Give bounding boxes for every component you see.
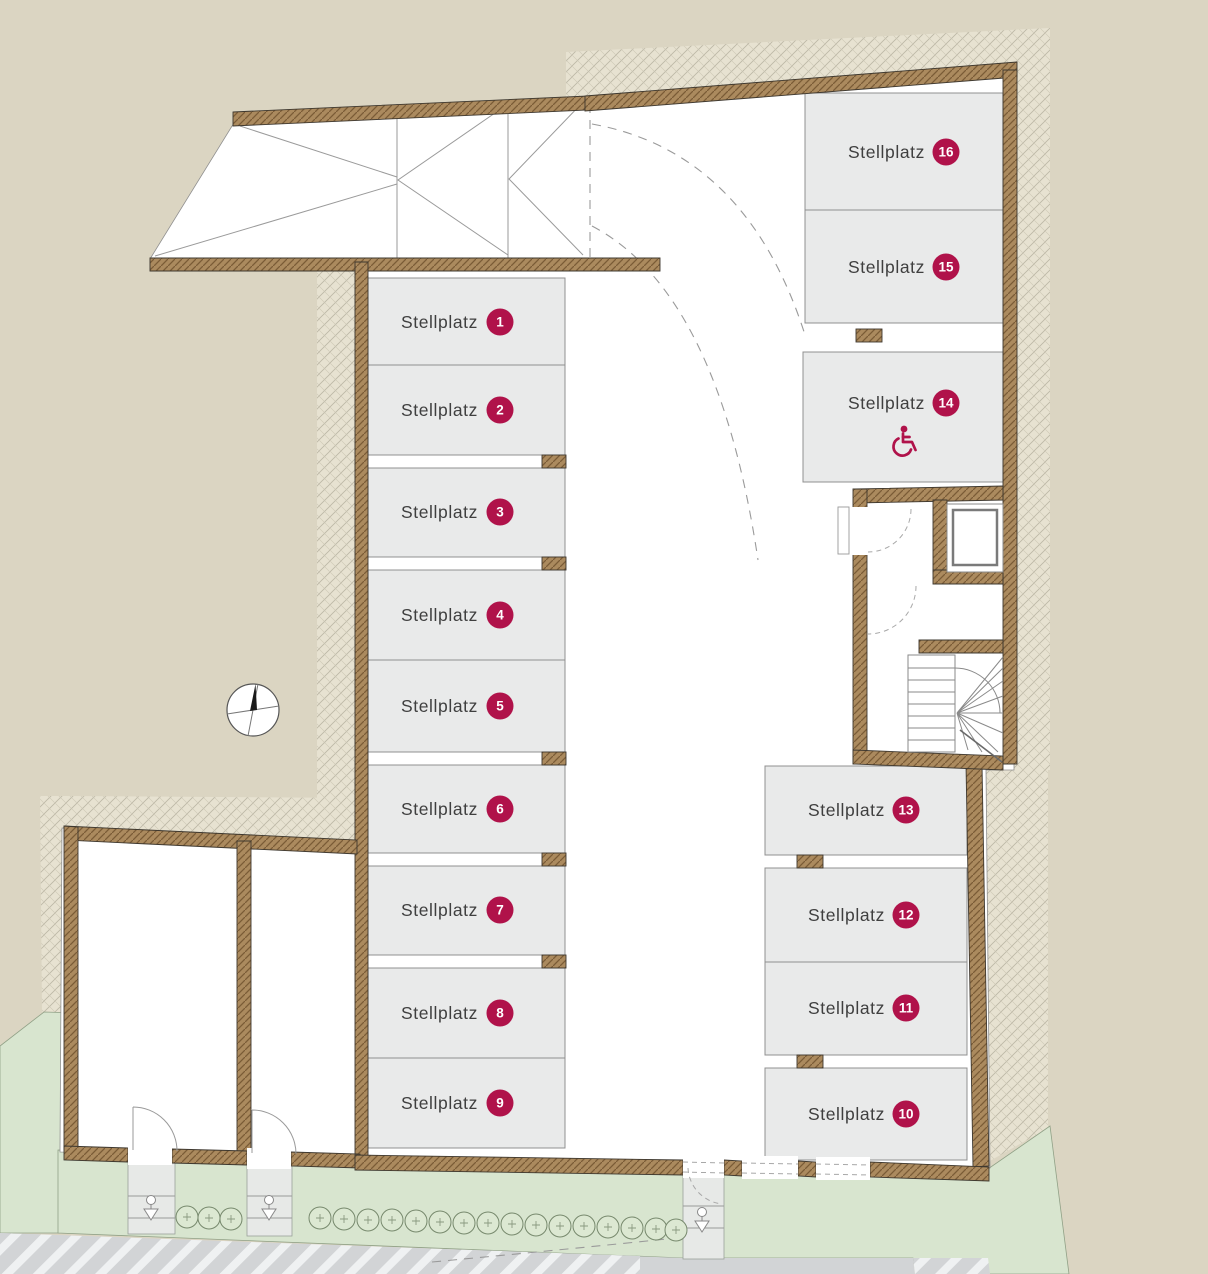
pillar	[542, 557, 566, 570]
door-leaf-stair	[838, 507, 849, 554]
pillar	[856, 329, 882, 342]
svg-text:Stellplatz: Stellplatz	[401, 400, 478, 420]
pillar	[542, 455, 566, 468]
space-label: Stellplatz	[401, 312, 478, 332]
svg-text:Stellplatz: Stellplatz	[848, 393, 925, 413]
parking-space-16[interactable]: Stellplatz 16	[805, 93, 1003, 210]
svg-text:3: 3	[496, 505, 504, 520]
svg-text:Stellplatz: Stellplatz	[401, 605, 478, 625]
svg-text:12: 12	[898, 908, 913, 923]
elevator	[947, 504, 1003, 572]
svg-text:10: 10	[898, 1107, 913, 1122]
svg-text:2: 2	[496, 403, 504, 418]
road-patch	[913, 1258, 990, 1274]
parking-space-6[interactable]: Stellplatz 6	[368, 765, 565, 853]
parking-space-5[interactable]: Stellplatz 5	[368, 660, 565, 752]
parking-space-13[interactable]: Stellplatz 13	[765, 766, 967, 855]
wall-annex-bottom-c	[291, 1152, 360, 1168]
svg-text:5: 5	[496, 699, 504, 714]
parking-space-14[interactable]: Stellplatz 14	[803, 352, 1003, 482]
pillar	[542, 853, 566, 866]
svg-text:Stellplatz: Stellplatz	[808, 998, 885, 1018]
svg-text:1: 1	[496, 315, 504, 330]
wall-stair-top	[855, 486, 1003, 503]
svg-text:13: 13	[898, 803, 914, 818]
svg-text:Stellplatz: Stellplatz	[401, 799, 478, 819]
wall-stair-divider	[933, 500, 947, 573]
svg-text:Stellplatz: Stellplatz	[848, 257, 925, 277]
svg-text:Stellplatz: Stellplatz	[401, 1003, 478, 1023]
parking-space-12[interactable]: Stellplatz 12	[765, 868, 967, 962]
wall-west	[355, 262, 368, 1160]
pillar	[797, 1055, 823, 1068]
svg-text:16: 16	[938, 145, 954, 160]
parking-space-10[interactable]: Stellplatz 10	[765, 1068, 967, 1160]
parking-space-2[interactable]: Stellplatz 2	[368, 365, 565, 455]
parking-space-8[interactable]: Stellplatz 8	[368, 968, 565, 1058]
svg-text:Stellplatz: Stellplatz	[401, 502, 478, 522]
svg-text:14: 14	[938, 396, 954, 411]
parking-space-9[interactable]: Stellplatz 9	[368, 1058, 565, 1148]
svg-text:Stellplatz: Stellplatz	[808, 800, 885, 820]
floor-plan-canvas: Stellplatz 1 Stellplatz 2 Stellplatz 3 S…	[0, 0, 1208, 1274]
svg-text:Stellplatz: Stellplatz	[808, 905, 885, 925]
wall-south-pillar-1	[724, 1160, 742, 1176]
wall-annex-divider	[237, 841, 251, 1154]
svg-text:Stellplatz: Stellplatz	[808, 1104, 885, 1124]
svg-text:8: 8	[496, 1006, 504, 1021]
wall-annex-left	[64, 826, 78, 1152]
parking-space-1[interactable]: Stellplatz 1	[368, 278, 565, 365]
svg-text:Stellplatz: Stellplatz	[848, 142, 925, 162]
wall-annex-bottom-a	[64, 1146, 128, 1162]
svg-text:4: 4	[496, 608, 504, 623]
wall-annex-bottom-b	[172, 1149, 247, 1165]
svg-text:Stellplatz: Stellplatz	[401, 1093, 478, 1113]
svg-text:11: 11	[899, 1001, 914, 1016]
wall-south-pillar-2	[798, 1161, 816, 1177]
svg-text:Stellplatz: Stellplatz	[401, 696, 478, 716]
wall-stair-mid-2	[919, 640, 1003, 653]
parking-space-3[interactable]: Stellplatz 3	[368, 468, 565, 557]
floor-plan-page: Stellplatz 1 Stellplatz 2 Stellplatz 3 S…	[0, 0, 1208, 1274]
svg-text:Stellplatz: Stellplatz	[401, 900, 478, 920]
svg-text:15: 15	[938, 260, 954, 275]
wall-ramp-bottom	[150, 258, 660, 271]
parking-space-11[interactable]: Stellplatz 11	[765, 962, 967, 1055]
pillar	[797, 855, 823, 868]
pillar	[542, 752, 566, 765]
wall-east-upper	[1003, 70, 1017, 764]
compass-icon	[227, 684, 279, 736]
svg-text:9: 9	[496, 1096, 504, 1111]
parking-space-15[interactable]: Stellplatz 15	[805, 210, 1003, 323]
svg-text:7: 7	[496, 903, 504, 918]
pillar	[542, 955, 566, 968]
svg-text:6: 6	[496, 802, 504, 817]
parking-space-4[interactable]: Stellplatz 4	[368, 570, 565, 660]
parking-space-7[interactable]: Stellplatz 7	[368, 866, 565, 955]
